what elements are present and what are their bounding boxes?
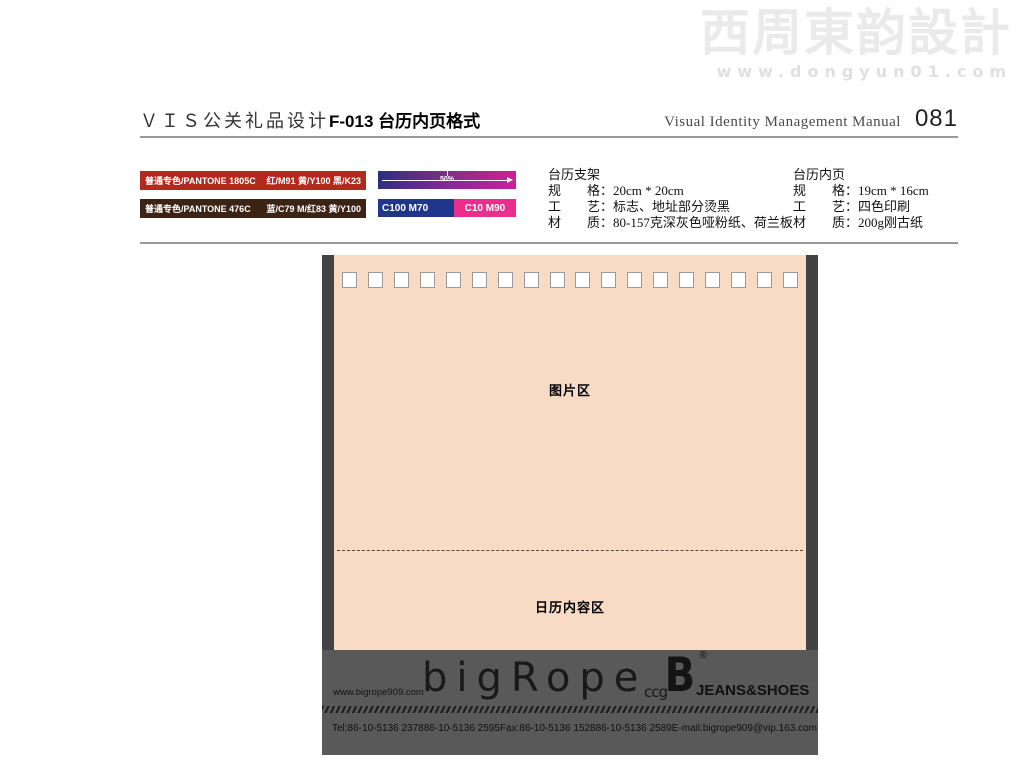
binding-hole xyxy=(524,272,539,288)
color-gradient-bar: 50% xyxy=(378,171,516,189)
b-brand-mark-icon: B ® xyxy=(662,652,698,699)
section-title: ＶＩＳ公关礼品设计 xyxy=(140,107,329,133)
section-divider xyxy=(140,242,958,244)
page-title: F-013 台历内页格式 xyxy=(329,107,480,132)
spec-block-stand: 台历支架 规 格：20cm * 20cm 工 艺：标志、地址部分烫黑 材 质：8… xyxy=(548,167,793,231)
binding-hole xyxy=(627,272,642,288)
binding-hole xyxy=(446,272,461,288)
binding-hole xyxy=(705,272,720,288)
spec-block-inner-page: 台历内页 规 格：19cm * 16cm 工 艺：四色印刷 材 质：200g刚古… xyxy=(793,167,929,231)
binding-hole xyxy=(420,272,435,288)
binding-hole xyxy=(550,272,565,288)
vi-manual-page: 西周東韵設計 www.dongyun01.com ＶＩＳ公关礼品设计 F-013… xyxy=(0,0,1024,768)
spec-title: 台历支架 xyxy=(548,167,793,183)
calendar-mockup: 图片区 日历内容区 www.bigrope909.com bigRope ccg… xyxy=(322,255,818,755)
cmyk-magenta-block: C10 M90 xyxy=(454,199,516,217)
swatch-label: 普通专色/PANTONE 1805C xyxy=(145,174,256,187)
binding-hole xyxy=(575,272,590,288)
binding-hole xyxy=(731,272,746,288)
pantone-swatch-1805c: 普通专色/PANTONE 1805C 红/M91 黄/Y100 黑/K23 xyxy=(140,171,366,190)
binding-hole xyxy=(368,272,383,288)
page-number: 081 xyxy=(915,105,958,133)
binding-hole xyxy=(757,272,772,288)
swatch-values: 蓝/C79 M/红83 黄/Y100 xyxy=(266,202,361,215)
spec-line: 规 格：20cm * 20cm xyxy=(548,183,793,199)
binding-hole xyxy=(394,272,409,288)
contact-info-row: Tel:86-10-5136 2378 86-10-5136 2595 Fax:… xyxy=(332,723,808,734)
brand-website: www.bigrope909.com xyxy=(333,687,424,698)
pantone-swatch-476c: 普通专色/PANTONE 476C 蓝/C79 M/红83 黄/Y100 xyxy=(140,199,366,218)
binding-hole xyxy=(783,272,798,288)
picture-area-label: 图片区 xyxy=(334,380,806,399)
watermark-url: www.dongyun01.com xyxy=(700,62,1012,81)
contact-fax: Fax:86-10-5136 1528 xyxy=(500,723,596,734)
spec-line: 工 艺：四色印刷 xyxy=(793,199,929,215)
watermark: 西周東韵設計 www.dongyun01.com xyxy=(700,6,1012,81)
registered-trademark-icon: ® xyxy=(699,651,706,661)
gradient-percent-label: 50% xyxy=(378,176,516,183)
binding-hole xyxy=(342,272,357,288)
watermark-brand-logo: 西周東韵設計 xyxy=(700,6,1012,61)
rope-pattern-divider xyxy=(322,706,818,713)
spec-line: 规 格：19cm * 16cm xyxy=(793,183,929,199)
cmyk-split-bar: C100 M70 C10 M90 xyxy=(378,199,516,217)
spec-line: 材 质：200g刚古纸 xyxy=(793,215,929,231)
binding-hole xyxy=(498,272,513,288)
b-mark-glyph: B xyxy=(665,652,695,699)
header-manual-group: Visual Identity Management Manual 081 xyxy=(664,105,958,133)
binding-holes xyxy=(342,272,798,288)
header-title-group: ＶＩＳ公关礼品设计 F-013 台历内页格式 xyxy=(140,107,480,133)
calendar-inner-page: 图片区 日历内容区 xyxy=(334,255,806,650)
cmyk-blue-label: C100 M70 xyxy=(382,203,428,214)
cmyk-blue-block: C100 M70 xyxy=(378,199,454,217)
page-header: ＶＩＳ公关礼品设计 F-013 台历内页格式 Visual Identity M… xyxy=(140,108,958,138)
binding-hole xyxy=(653,272,668,288)
calendar-area-label: 日历内容区 xyxy=(334,597,806,616)
contact-tel-2: 86-10-5136 2595 xyxy=(424,723,500,734)
binding-hole xyxy=(472,272,487,288)
contact-email: E-mail:bigrope909@vip.163.com xyxy=(672,723,817,734)
binding-hole xyxy=(679,272,694,288)
brand-tagline: JEANS&SHOES xyxy=(696,682,809,699)
spec-title: 台历内页 xyxy=(793,167,929,183)
contact-tel-3: 86-10-5136 2589 xyxy=(596,723,672,734)
calendar-stand-footer: www.bigrope909.com bigRope ccg B ® JEANS… xyxy=(322,650,818,755)
swatch-label: 普通专色/PANTONE 476C xyxy=(145,202,251,215)
contact-tel-1: Tel:86-10-5136 2378 xyxy=(332,723,424,734)
bigrope-logo: bigRope xyxy=(422,656,647,700)
manual-name: Visual Identity Management Manual xyxy=(664,114,901,131)
spec-line: 材 质：80-157克深灰色哑粉纸、荷兰板 xyxy=(548,215,793,231)
binding-hole xyxy=(601,272,616,288)
spec-line: 工 艺：标志、地址部分烫黑 xyxy=(548,199,793,215)
swatch-values: 红/M91 黄/Y100 黑/K23 xyxy=(266,174,361,187)
cmyk-magenta-label: C10 M90 xyxy=(465,203,506,214)
fold-dashed-line xyxy=(337,550,803,551)
